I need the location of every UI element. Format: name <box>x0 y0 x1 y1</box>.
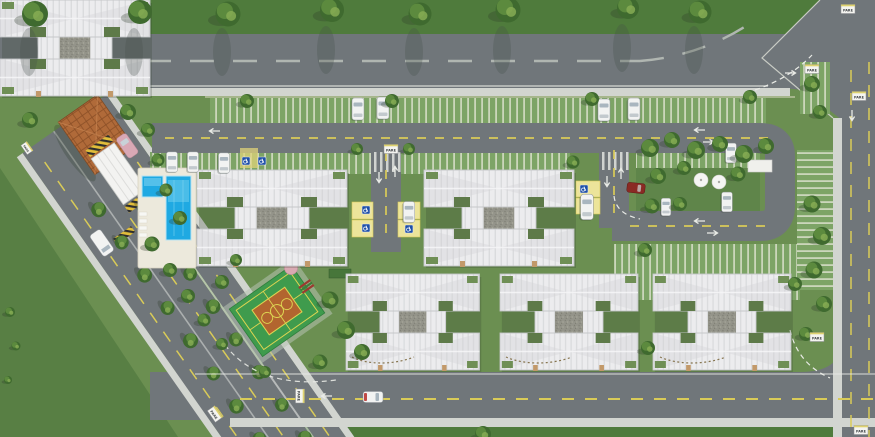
aerial-site-plan: PARE <box>0 0 875 437</box>
building-2 <box>424 170 576 268</box>
umbrella-2 <box>712 175 726 189</box>
pool-area <box>138 168 196 268</box>
north-parking-strip <box>210 98 766 124</box>
building-1 <box>197 170 349 268</box>
building-5 <box>653 274 793 372</box>
bottom-sidewalk <box>230 418 875 427</box>
driving-car <box>363 392 383 403</box>
building-4 <box>500 274 640 372</box>
site-plan-rendering: PARE <box>0 0 875 437</box>
garden-pergola <box>748 160 772 172</box>
umbrella-1 <box>694 173 708 187</box>
red-car <box>627 182 646 194</box>
right-sidewalk <box>833 118 842 437</box>
